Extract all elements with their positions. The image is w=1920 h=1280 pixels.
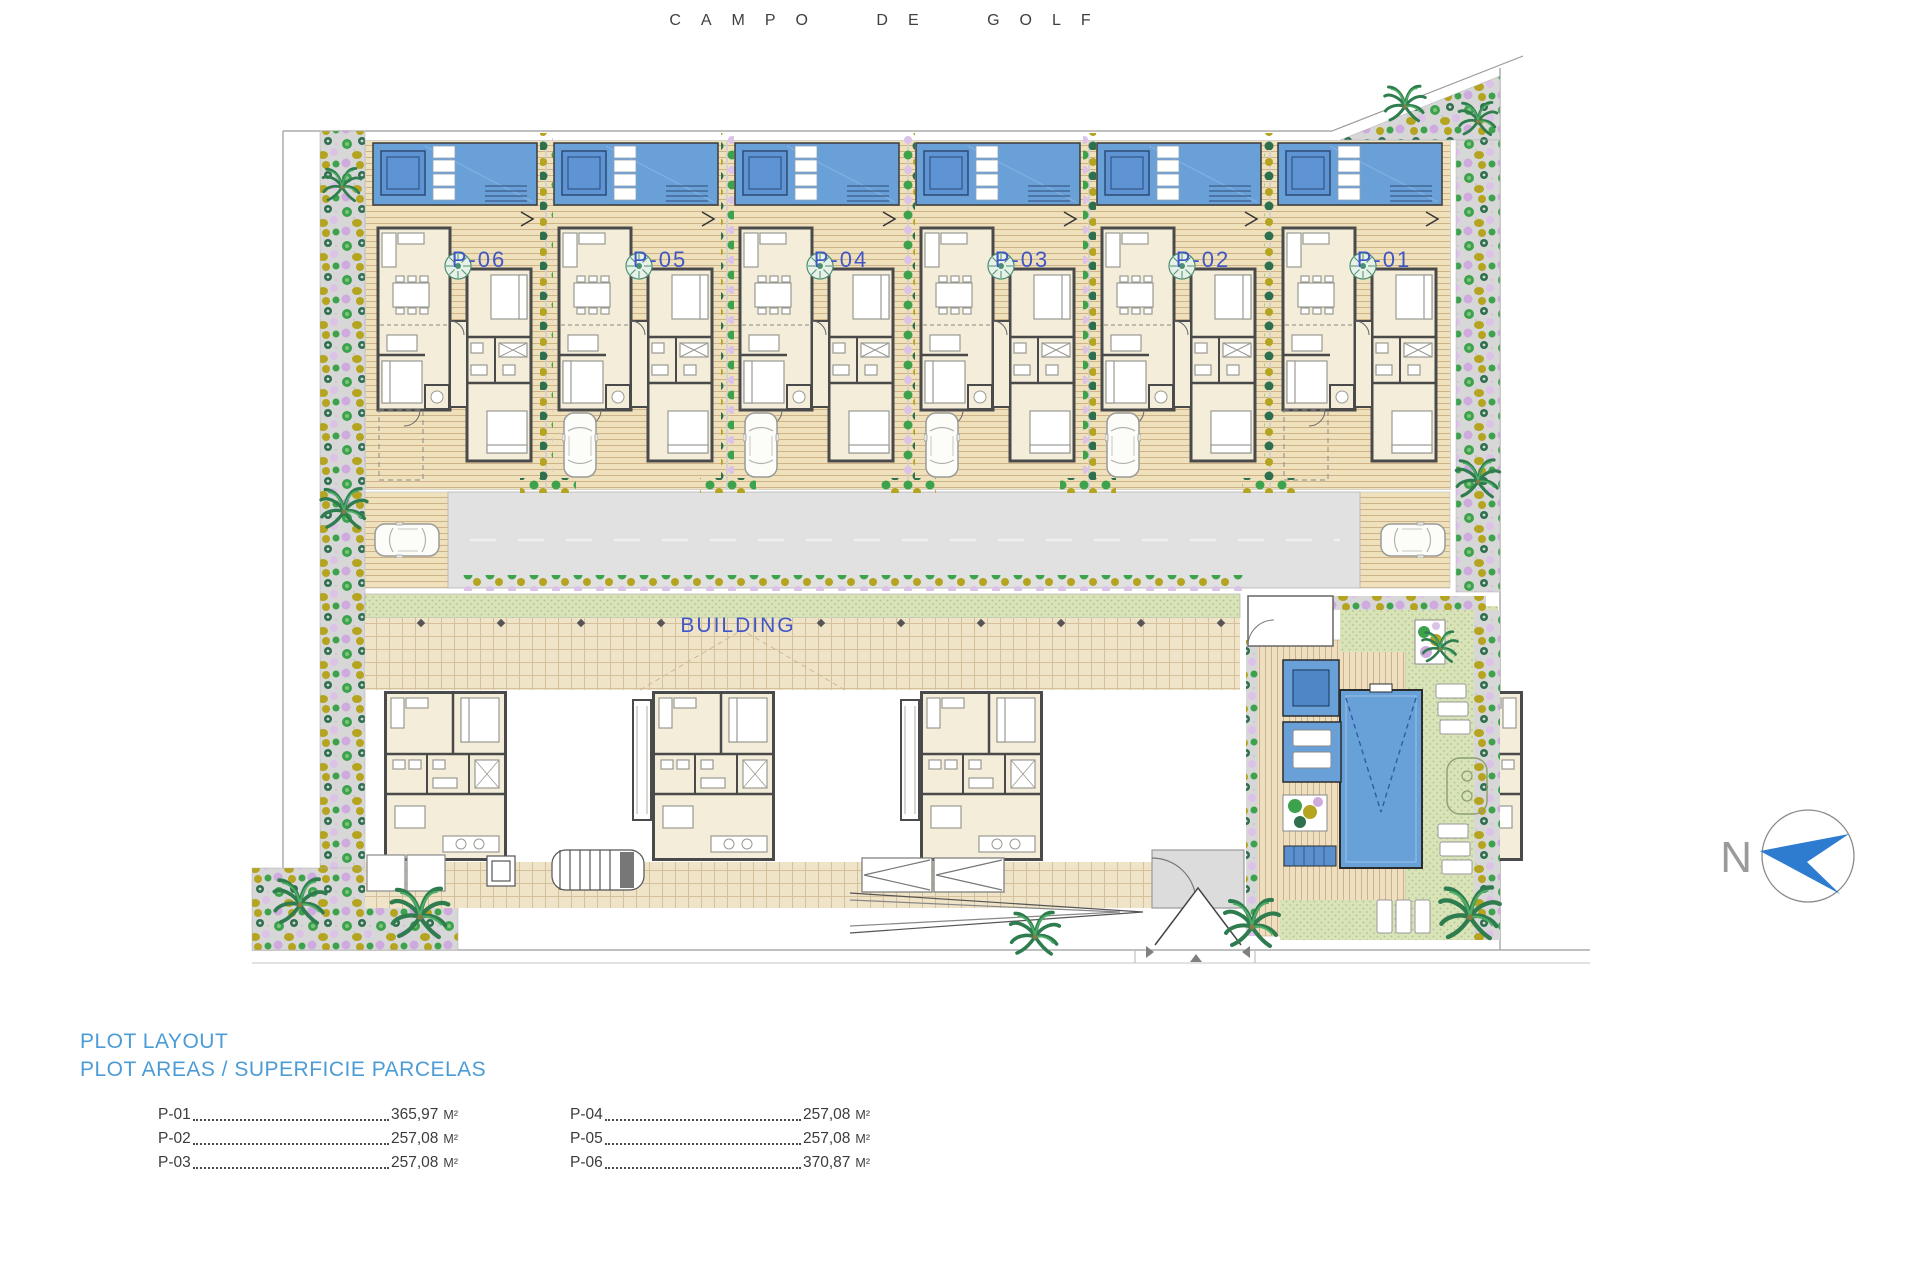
dotted-leader	[605, 1167, 801, 1169]
plot-p01	[1271, 141, 1451, 490]
plot-label-p01: P-01	[1357, 247, 1411, 272]
townhouse-plots	[366, 133, 1451, 490]
north-label: N	[1720, 833, 1752, 882]
plot-p06	[366, 141, 546, 490]
building-lawn	[365, 594, 1240, 618]
access-road	[365, 478, 1450, 591]
apartment-building	[365, 594, 1920, 962]
legend-column-2: P-04257,08M² P-05257,08M² P-06370,87M²	[570, 1100, 870, 1172]
garden-strip-right	[1456, 140, 1500, 592]
plot-id: P-04	[570, 1106, 603, 1124]
car-icon	[1105, 413, 1141, 477]
plot-id: P-06	[570, 1154, 603, 1172]
communal-pool-area	[1246, 596, 1500, 940]
dotted-leader	[605, 1143, 801, 1145]
plot-area-unit: M²	[855, 1132, 870, 1146]
legend-row: P-04257,08M²	[570, 1100, 870, 1124]
plot-label-p03: P-03	[995, 247, 1049, 272]
plot-area-value: 257,08	[803, 1106, 850, 1123]
plot-area-value: 257,08	[391, 1130, 438, 1147]
sun-lounger	[1293, 752, 1331, 768]
legend-subtitle: PLOT AREAS / SUPERFICIE PARCELAS	[80, 1056, 900, 1084]
legend-row: P-02257,08M²	[158, 1124, 458, 1148]
road-planting-strip	[460, 575, 1243, 591]
plot-area-unit: M²	[855, 1156, 870, 1170]
plot-id: P-02	[158, 1130, 191, 1148]
plot-id: P-03	[158, 1154, 191, 1172]
building-terrace-top	[365, 618, 1240, 690]
apartment-units	[386, 693, 1920, 860]
dotted-leader	[193, 1119, 389, 1121]
garden-strip-left	[320, 131, 365, 950]
plot-id: P-05	[570, 1130, 603, 1148]
plot-area-unit: M²	[443, 1132, 458, 1146]
plot-area-value: 365,97	[391, 1106, 438, 1123]
dotted-leader	[193, 1167, 389, 1169]
car-icon	[1381, 522, 1445, 558]
car-icon	[375, 522, 439, 558]
legend-row: P-05257,08M²	[570, 1124, 870, 1148]
stair-core	[901, 700, 919, 820]
plot-label-p02: P-02	[1176, 247, 1230, 272]
pool-steps	[1284, 846, 1336, 866]
car-icon	[924, 413, 960, 477]
legend-title: PLOT LAYOUT	[80, 1028, 900, 1056]
north-arrow: N	[1720, 810, 1854, 902]
plot-label-p04: P-04	[814, 247, 868, 272]
plot-area-unit: M²	[443, 1156, 458, 1170]
legend-row: P-06370,87M²	[570, 1148, 870, 1172]
plot-area-value: 257,08	[391, 1154, 438, 1171]
legend-row: P-03257,08M²	[158, 1148, 458, 1172]
dotted-leader	[605, 1119, 801, 1121]
stair-core	[633, 700, 651, 820]
site-plan-sheet: CAMPO DE GOLF	[0, 0, 1920, 1280]
legend-row: P-01365,97M²	[158, 1100, 458, 1124]
plot-area-unit: M²	[855, 1108, 870, 1122]
plot-area-value: 257,08	[803, 1130, 850, 1147]
dotted-leader	[193, 1143, 389, 1145]
plot-area-value: 370,87	[803, 1154, 850, 1171]
building-label: BUILDING	[680, 614, 795, 637]
legend-column-1: P-01365,97M² P-02257,08M² P-03257,08M²	[158, 1100, 458, 1172]
plot-label-p06: P-06	[452, 247, 506, 272]
plot-id: P-01	[158, 1106, 191, 1124]
legend: PLOT LAYOUT PLOT AREAS / SUPERFICIE PARC…	[80, 1028, 900, 1172]
sun-lounger	[1293, 730, 1331, 746]
car-icon	[562, 413, 598, 477]
plot-label-p05: P-05	[633, 247, 687, 272]
car-icon	[743, 413, 779, 477]
direction-markers	[1146, 946, 1250, 962]
pool-pavilion	[1248, 596, 1333, 646]
plot-area-unit: M²	[443, 1108, 458, 1122]
north-arrow-icon	[1760, 834, 1849, 894]
